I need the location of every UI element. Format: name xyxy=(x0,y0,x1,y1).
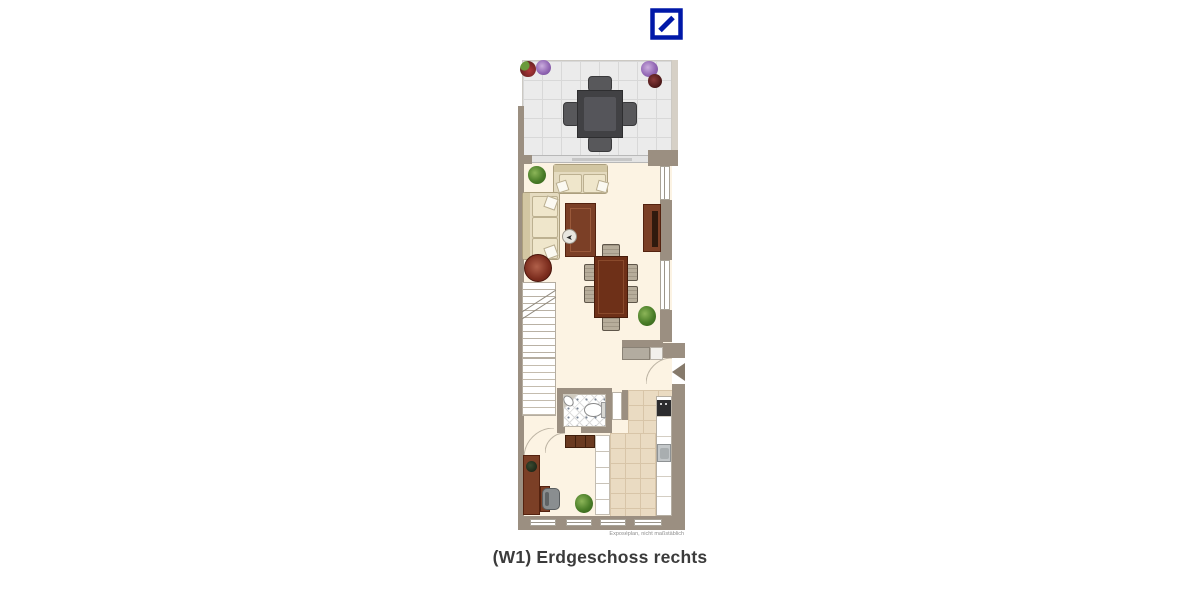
plant-icon xyxy=(638,306,656,326)
flower-pot-icon xyxy=(536,60,551,75)
round-side-table xyxy=(524,254,552,282)
window xyxy=(634,519,662,526)
shelf-wall xyxy=(622,340,663,347)
sideboard xyxy=(643,204,661,252)
dresser xyxy=(565,435,595,448)
entrance-door-arc xyxy=(646,358,672,384)
desk-plant-icon xyxy=(526,461,537,472)
wall-shelf-white xyxy=(650,347,663,360)
entrance-arrow-icon xyxy=(672,363,685,381)
right-wall-lower xyxy=(672,384,685,530)
floor-plan: ➤ xyxy=(518,58,686,540)
plant-icon xyxy=(528,166,546,184)
bath-wall xyxy=(581,427,612,433)
window xyxy=(660,260,670,310)
office-chair xyxy=(542,488,560,510)
terrace-wall-right xyxy=(648,150,678,166)
window xyxy=(530,519,556,526)
tall-cabinet xyxy=(595,435,610,515)
dining-table xyxy=(594,256,628,318)
staircase-lower xyxy=(522,358,556,416)
room-door-arc xyxy=(524,428,554,458)
terrace-wall-left xyxy=(518,155,532,164)
deutsche-bank-logo xyxy=(650,8,683,40)
plant-icon xyxy=(575,494,593,513)
plan-disclaimer: Exposéplan, nicht maßstäblich xyxy=(518,531,684,537)
right-wall xyxy=(660,200,672,260)
bath-wall xyxy=(622,390,628,420)
window xyxy=(600,519,626,526)
oven xyxy=(657,400,671,416)
right-wall xyxy=(660,310,672,342)
patio-chair xyxy=(588,136,612,152)
loveseat-sofa xyxy=(553,164,608,194)
window xyxy=(660,166,670,200)
patio-table xyxy=(577,90,623,138)
right-wall-corner xyxy=(663,343,685,358)
flower-pot-icon xyxy=(648,74,662,88)
window xyxy=(566,519,592,526)
staircase-break-lines xyxy=(522,282,556,328)
terrace-right-edge xyxy=(672,60,678,154)
toilet-tank xyxy=(601,402,606,418)
sliding-door xyxy=(532,155,648,163)
plan-caption: (W1) Erdgeschoss rechts xyxy=(0,547,1200,568)
compass-arrow-icon: ➤ xyxy=(562,229,577,244)
corner-sofa xyxy=(522,192,560,260)
duct-niche xyxy=(612,392,622,420)
kitchen-sink xyxy=(657,444,671,462)
dining-chair xyxy=(602,316,620,331)
wall-shelf xyxy=(622,347,650,360)
flower-pot-icon xyxy=(520,61,536,77)
